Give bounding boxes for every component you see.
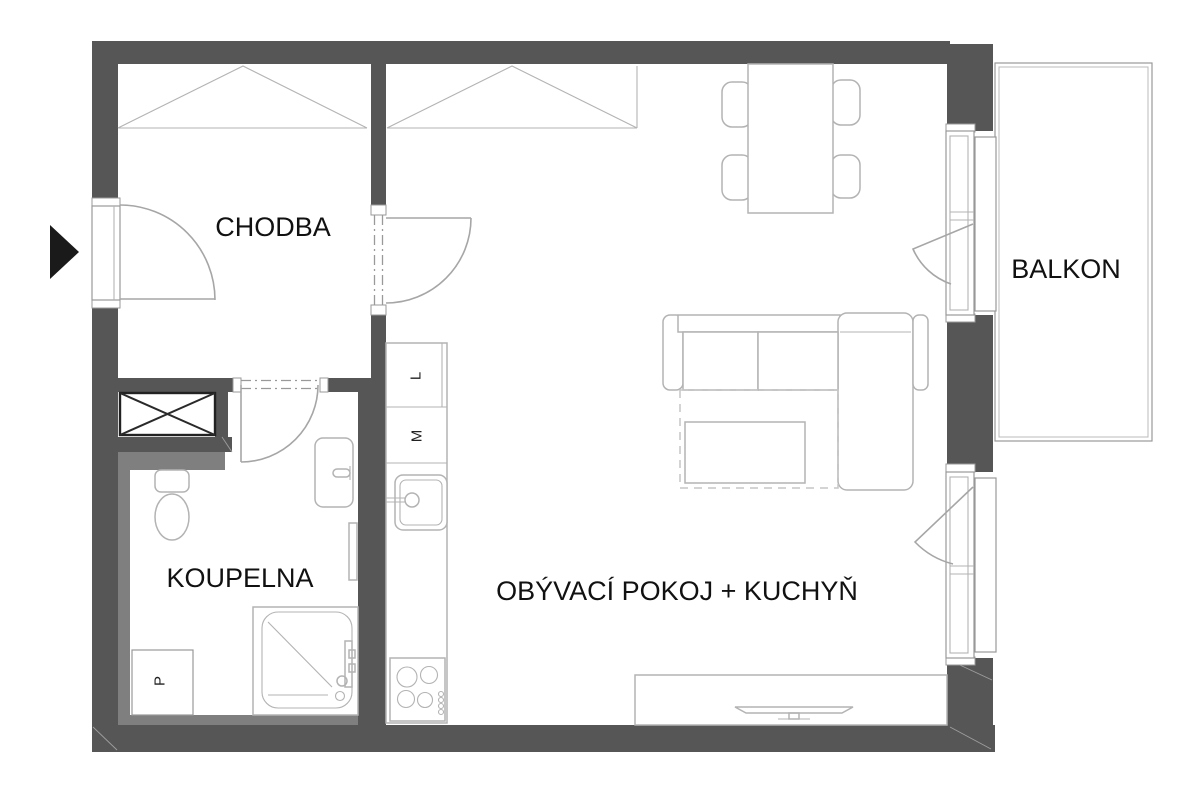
wall-left-lower: [92, 307, 118, 752]
bathroom-door-jamb-left: [233, 378, 241, 392]
sofa-back: [678, 315, 840, 332]
living-wardrobe: [387, 66, 637, 128]
toilet: [155, 470, 189, 540]
wall-top: [92, 41, 950, 64]
room-label-obyvaci-pokoj-kuchyn: OBÝVACÍ POKOJ + KUCHYŇ: [496, 575, 858, 606]
sofa-armrest-right: [913, 315, 928, 390]
wall-bathroom-top-right: [328, 378, 371, 392]
floor-plan-page: CHODBA KOUPELNA OBÝVACÍ POKOJ + KUCHYŇ B…: [0, 0, 1200, 795]
dining-chair-3: [831, 80, 860, 125]
hall-door-jamb-bottom: [371, 305, 386, 315]
toilet-cistern: [155, 470, 189, 492]
toilet-bowl: [155, 494, 189, 540]
tv-unit: [635, 675, 947, 725]
appliance-label-dishwasher: M: [409, 430, 426, 443]
hall-door-jamb-top: [371, 205, 386, 215]
entrance-jamb-top: [92, 198, 120, 206]
wall-right-top: [947, 44, 993, 131]
wall-left-upper: [92, 41, 118, 200]
floor-plan-svg: CHODBA KOUPELNA OBÝVACÍ POKOJ + KUCHYŇ B…: [0, 0, 1200, 795]
furred-wall-block: [118, 452, 225, 470]
entrance-door-swing-arc: [120, 205, 215, 300]
wall-under-shaft: [118, 437, 232, 452]
room-label-chodba: CHODBA: [215, 212, 331, 242]
bathroom-door-opening-lines: [241, 381, 320, 389]
hall-door-opening-lines: [375, 215, 383, 305]
tv-stand: [635, 675, 947, 725]
wall-bathroom-right: [358, 392, 371, 725]
entrance-door: [50, 198, 215, 308]
bathroom-door-swing-arc: [241, 385, 318, 462]
washbasin: [315, 438, 353, 507]
window1-outer-sill: [975, 137, 996, 311]
dining-table: [748, 64, 833, 213]
balcony-door-window: [913, 124, 996, 322]
dining-chair-4: [831, 155, 860, 198]
appliance-label-washer: P: [152, 676, 169, 686]
hall-living-door: [371, 205, 471, 315]
sofa-seat-1: [683, 332, 758, 390]
balcony: [995, 63, 1152, 441]
balcony-outline: [995, 63, 1152, 441]
entrance-jamb-bottom: [92, 300, 120, 308]
furred-wall-left-strip: [118, 470, 130, 715]
hall-wardrobe: [118, 66, 367, 128]
sofa-chaise: [838, 313, 913, 490]
washbasin-outline: [315, 438, 353, 507]
window2-outer-sill: [975, 478, 996, 652]
bathroom-shelf: [349, 523, 357, 580]
wall-shaft-pillar: [215, 392, 228, 437]
room-label-koupelna: KOUPELNA: [166, 563, 313, 593]
installation-shaft: [120, 393, 215, 435]
lower-window: [915, 464, 996, 665]
wall-partition-upper: [371, 63, 386, 205]
wall-bottom: [92, 725, 995, 752]
entrance-arrow-icon: [50, 225, 79, 279]
room-label-balkon: BALKON: [1011, 254, 1121, 284]
wall-bathroom-top-left: [118, 378, 233, 392]
dining-set: [722, 64, 860, 213]
kitchen: [386, 343, 447, 723]
appliance-label-fridge: L: [408, 372, 425, 380]
entrance-frame: [92, 206, 120, 300]
hall-door-swing-arc: [386, 218, 471, 303]
window2-jamb-top: [946, 464, 975, 472]
stove: [390, 658, 445, 721]
bathroom-door-jamb-right: [320, 378, 328, 392]
shower: [253, 607, 358, 715]
coffee-table: [685, 422, 805, 483]
wall-partition-lower: [371, 315, 386, 725]
bathroom-door: [233, 378, 328, 462]
stove-outline: [390, 658, 445, 721]
wall-right-mid: [947, 315, 993, 472]
sofa-seat-2: [758, 332, 838, 390]
furred-wall-bottom-strip: [118, 715, 358, 725]
